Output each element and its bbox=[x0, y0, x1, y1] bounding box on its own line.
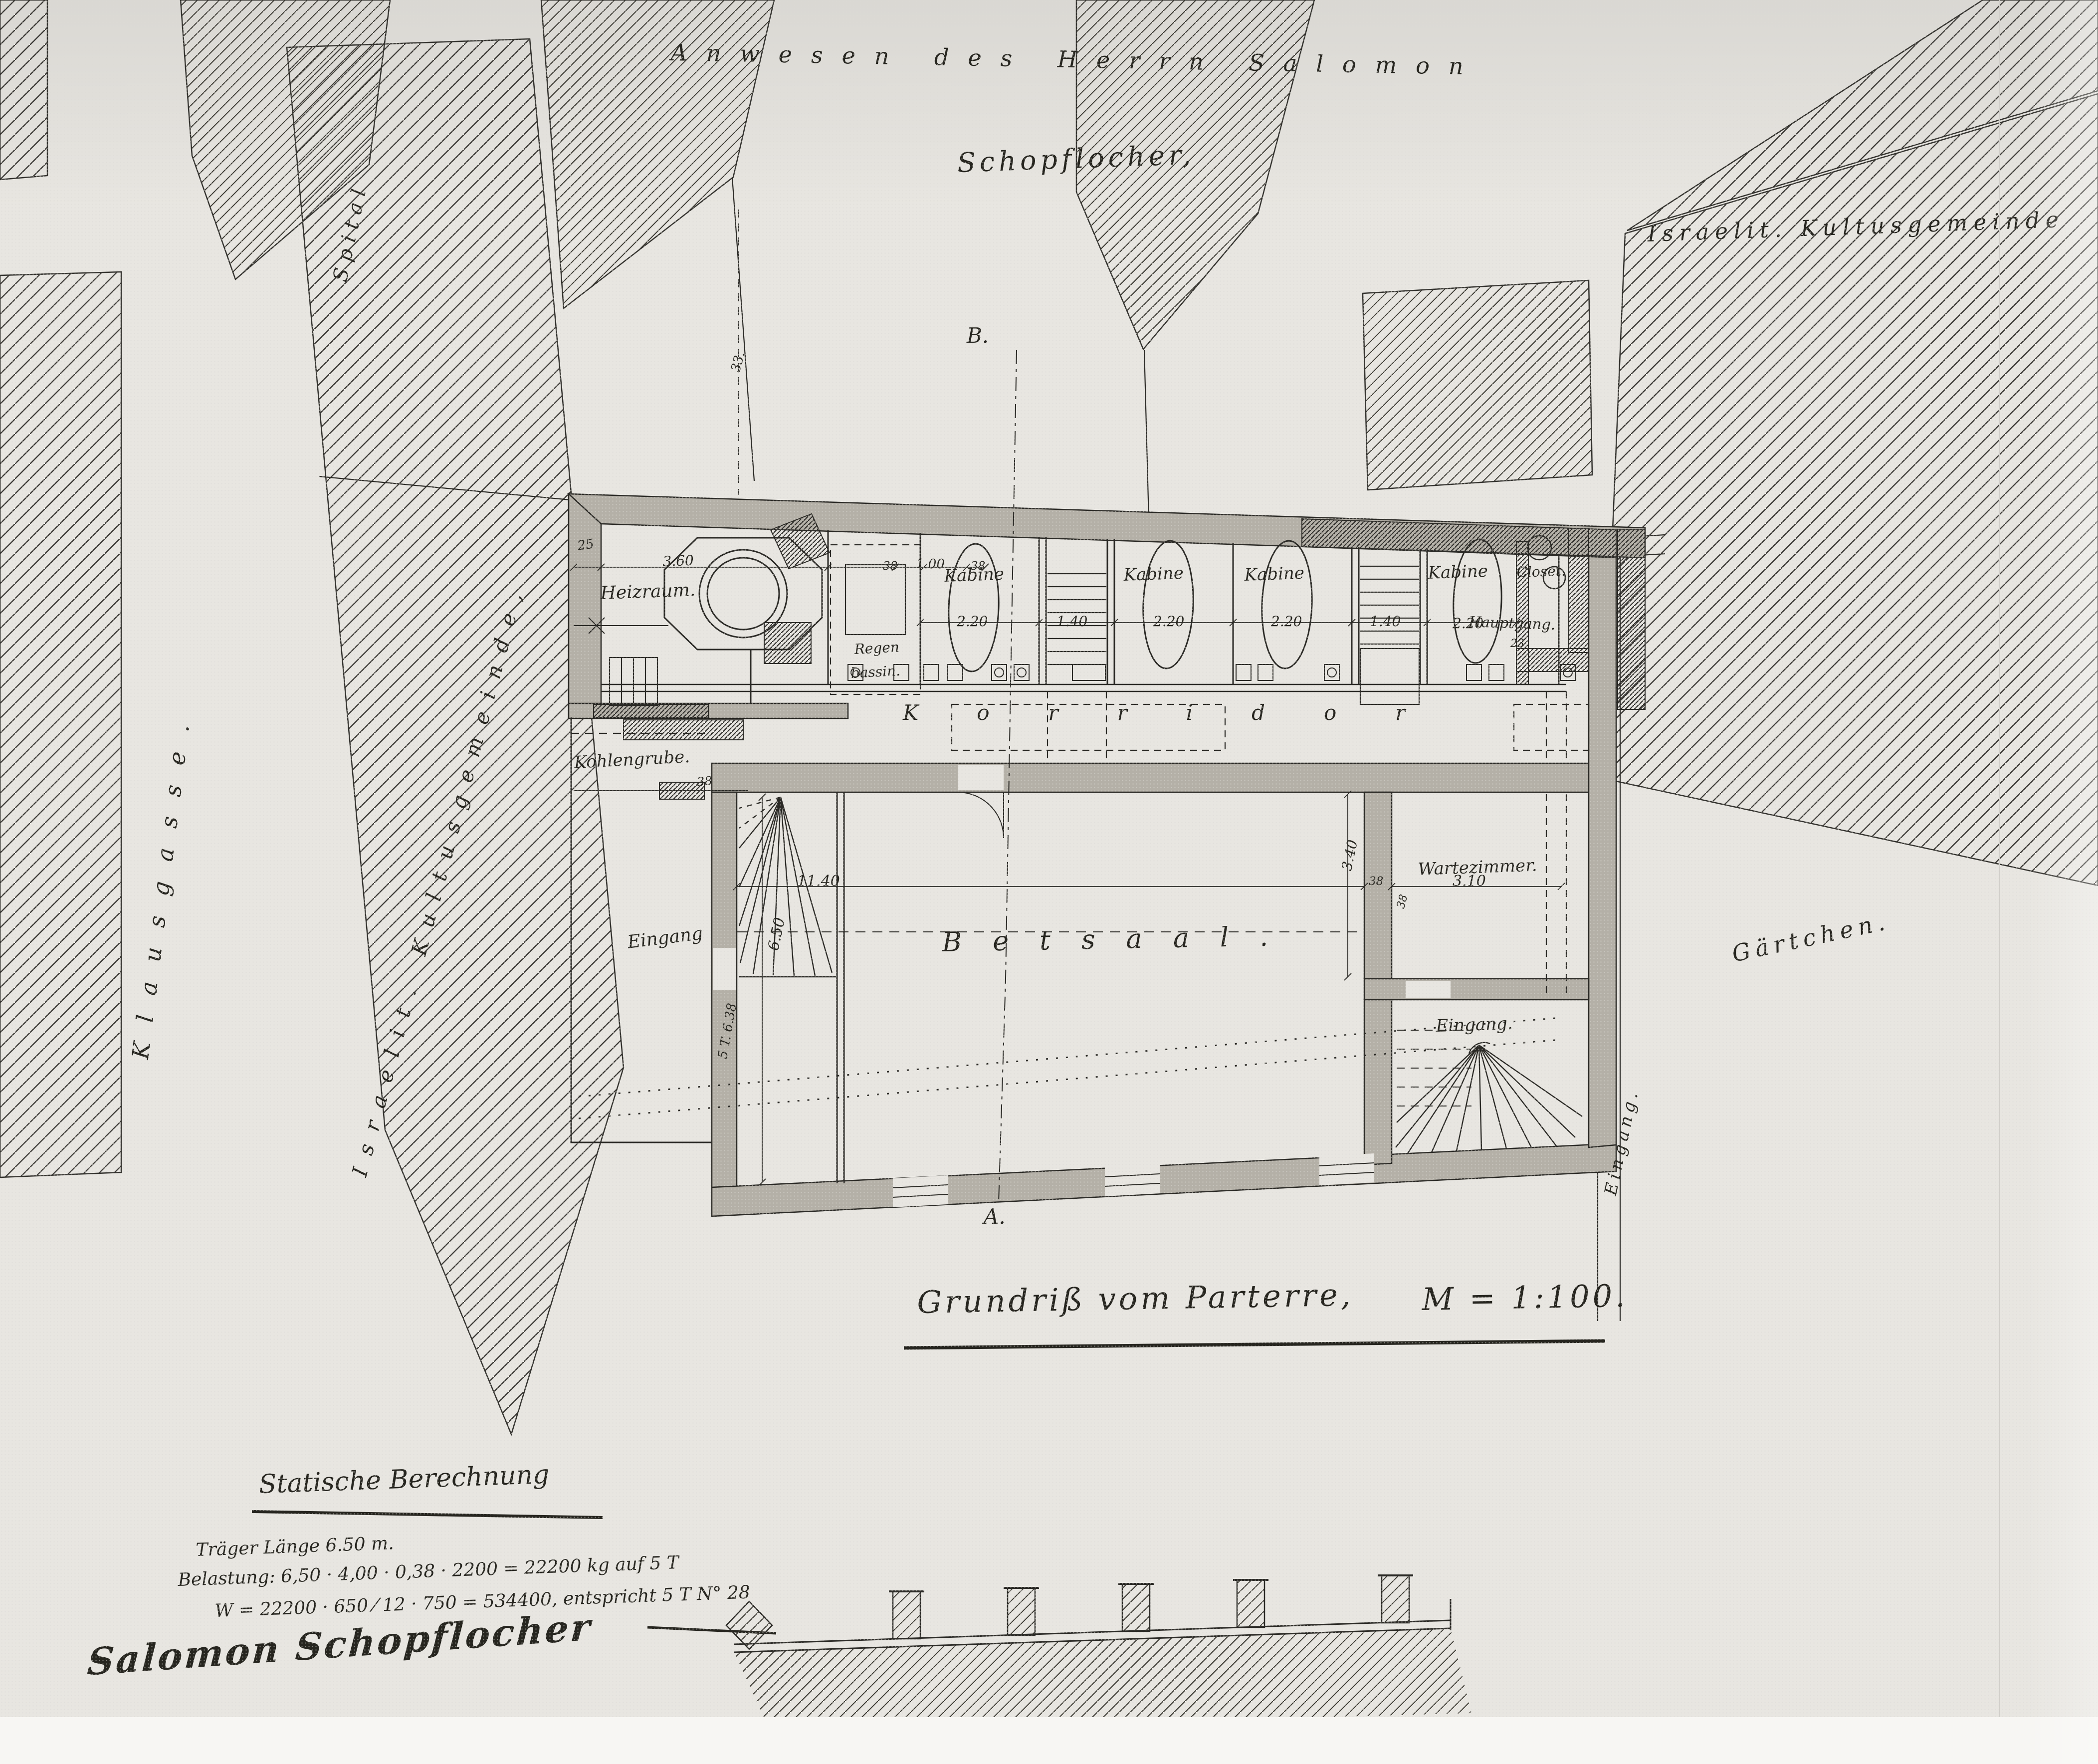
plan-sheet: Anwesen des Herrn SalomonSchopflocher,Is… bbox=[0, 0, 2098, 1764]
dim-3-60: 3.60 bbox=[662, 554, 694, 569]
room-label-betsaal: Betsaal. bbox=[942, 923, 1299, 956]
dim-38-stair: 38 bbox=[696, 775, 713, 788]
entrance-label-right-outside: Eingang. bbox=[1602, 1087, 1642, 1197]
handwritten-labels: Anwesen des Herrn SalomonSchopflocher,Is… bbox=[0, 0, 2098, 1764]
room-label-closet: Closet. bbox=[1516, 564, 1566, 580]
dim-33: 33. bbox=[729, 350, 747, 374]
entrance-label-left: Eingang bbox=[627, 925, 704, 952]
section-marker-b: B. bbox=[967, 325, 989, 346]
dim-11-40: 11.40 bbox=[797, 874, 840, 889]
dim-25: 25 bbox=[577, 537, 595, 552]
dim-2-20-2: 2.20 bbox=[1153, 615, 1184, 629]
dim-2-20-3: 2.20 bbox=[1271, 615, 1302, 629]
room-label-kohlengrube: Kohlengrube. bbox=[574, 748, 690, 771]
statics-line-1: Träger Länge 6.50 m. bbox=[196, 1535, 394, 1559]
plan-title: Grundriß vom Parterre, bbox=[917, 1280, 1354, 1318]
paper-crease bbox=[1999, 0, 2000, 1717]
dim-1-00: 1.00 bbox=[916, 558, 945, 571]
site-label-anwesen: Anwesen des Herrn Salomon bbox=[670, 41, 1482, 78]
signature: Salomon Schopflocher bbox=[86, 1608, 593, 1681]
dim-2-20-4: 2.20 bbox=[1453, 617, 1483, 631]
room-label-regen: Regen bbox=[854, 640, 900, 657]
street-label-spital: Spital bbox=[330, 181, 371, 283]
dim-3-40: 3.40 bbox=[1340, 839, 1360, 872]
beam-note: 5 T. 6.38 bbox=[716, 1002, 739, 1060]
dim-38-wz: 38 bbox=[1369, 876, 1383, 887]
street-label-klausgasse: Klausgasse. bbox=[129, 703, 195, 1061]
dim-3-10: 3.10 bbox=[1453, 874, 1486, 889]
garden-label-gaertchen: Gärtchen. bbox=[1730, 909, 1891, 965]
parcel-label-kultusgemeinde-left: Israelit. Kultusgemeinde, bbox=[349, 577, 529, 1179]
room-label-kabine-3: Kabine bbox=[1244, 565, 1304, 584]
paper-edge-right bbox=[2026, 0, 2098, 1764]
site-label-schopflocher: Schopflocher, bbox=[957, 141, 1195, 177]
entrance-label-right-hall: Eingang. bbox=[1436, 1015, 1513, 1035]
room-label-heizraum: Heizraum. bbox=[600, 581, 696, 603]
dim-6-50: 6.50 bbox=[766, 916, 788, 952]
dim-1-40-2: 1.40 bbox=[1370, 615, 1401, 629]
room-label-kabine-2: Kabine bbox=[1123, 565, 1184, 584]
dim-38-a: 38 bbox=[883, 561, 897, 572]
section-marker-a: A. bbox=[984, 1206, 1006, 1227]
room-label-kabine-4: Kabine bbox=[1428, 563, 1488, 582]
dim-1-40-1: 1.40 bbox=[1056, 615, 1087, 629]
plan-scale: M = 1:100. bbox=[1422, 1281, 1628, 1315]
dim-23: 23 bbox=[1510, 639, 1524, 650]
room-label-korridor: Korridor bbox=[903, 702, 1464, 723]
statics-title: Statische Berechnung bbox=[258, 1462, 550, 1498]
dim-2-20-1: 2.20 bbox=[957, 615, 988, 629]
dim-38-b: 38 bbox=[971, 561, 985, 572]
room-label-bassin: bassin. bbox=[850, 664, 901, 680]
paper-edge-bottom bbox=[0, 1717, 2098, 1764]
statics-line-2: Belastung: 6,50 · 4,00 · 0,38 · 2200 = 2… bbox=[178, 1554, 679, 1589]
parcel-label-kultusgemeinde-right: Israelit. Kultusgemeinde bbox=[1647, 209, 2065, 245]
dim-38-wz2: 38 bbox=[1396, 893, 1410, 910]
